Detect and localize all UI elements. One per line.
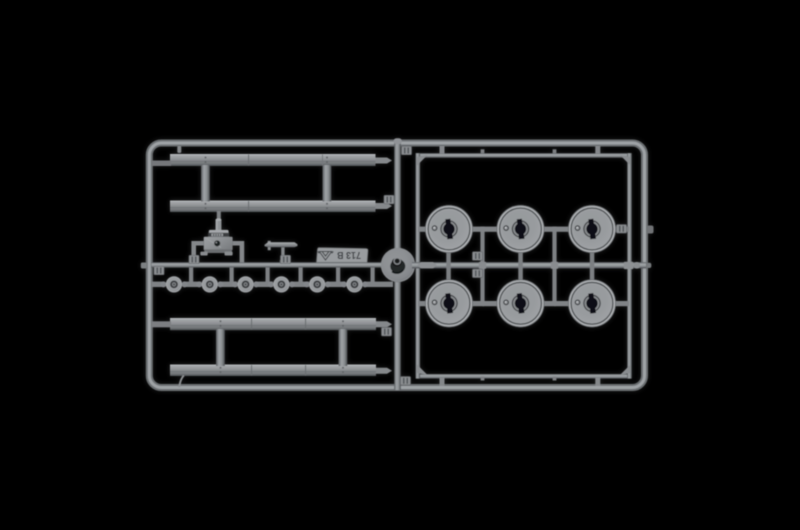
svg-text:713 B: 713 B — [337, 249, 361, 260]
